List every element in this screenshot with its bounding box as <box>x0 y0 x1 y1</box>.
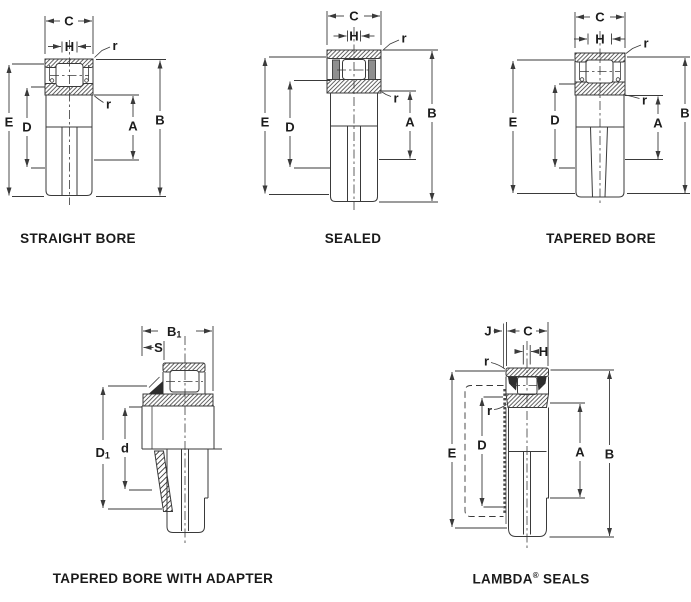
dim-b: B <box>155 113 164 128</box>
dim-e: E <box>448 446 457 461</box>
dim-h: H <box>349 29 358 44</box>
dim-b1-main: B <box>167 324 176 339</box>
dim-j: J <box>484 324 491 339</box>
dim-a: A <box>653 116 663 131</box>
dim-b1-sub: 1 <box>176 330 181 340</box>
dim-b1: B1 <box>167 324 181 340</box>
caption-straight-bore: STRAIGHT BORE <box>0 231 156 246</box>
dim-d1-main: D <box>96 445 105 460</box>
caption-lambda-post: SEALS <box>539 572 590 587</box>
caption-tapered-bore-with-adapter: TAPERED BORE WITH ADAPTER <box>38 571 288 586</box>
bearing-types-drawing-page: C H r r E D A B C <box>0 0 691 602</box>
dim-h: H <box>65 39 74 54</box>
dim-r-top: r <box>484 354 489 369</box>
bearing-diagrams-svg: C H r r E D A B C <box>0 0 691 602</box>
adapter-flange-hatch <box>143 394 213 406</box>
hub-body <box>46 95 92 196</box>
dim-d: D <box>285 120 294 135</box>
tapered-bore-with-adapter-figure: B1 S D1 d <box>96 324 223 546</box>
dim-r-top: r <box>401 31 406 46</box>
dim-d: D <box>22 120 31 135</box>
dim-d: D <box>477 438 486 453</box>
tapered-bore-figure: C H r r E D A B <box>509 10 690 206</box>
caption-sealed: SEALED <box>273 231 433 246</box>
adapter-sleeve <box>155 451 173 512</box>
hub-body <box>576 95 624 197</box>
caption-lambda-seals: LAMBDA® SEALS <box>431 571 631 587</box>
dim-d1: D1 <box>96 445 110 461</box>
seal-left <box>508 377 518 391</box>
dim-b: B <box>605 447 614 462</box>
shaft-cylinder <box>167 449 208 533</box>
dim-c: C <box>595 10 605 25</box>
dim-a: A <box>405 115 415 130</box>
dim-e: E <box>509 115 518 130</box>
dim-r-top: r <box>112 38 117 53</box>
dim-r-bottom: r <box>487 403 492 418</box>
dim-d: D <box>550 113 559 128</box>
seal-right <box>537 377 547 391</box>
lock-tab <box>149 381 164 394</box>
dim-e: E <box>261 115 270 130</box>
housing-block <box>142 406 222 449</box>
dim-c: C <box>64 14 74 29</box>
straight-bore-figure: C H r r E D A B <box>5 14 166 206</box>
dim-d-lower: d <box>121 441 129 456</box>
seal-right <box>369 60 376 80</box>
lambda-seals-figure: J C H r r E D A B <box>448 322 615 548</box>
dim-r-bottom: r <box>393 91 398 106</box>
hub-body <box>509 408 547 537</box>
dim-b: B <box>680 106 689 121</box>
dim-h: H <box>539 344 548 359</box>
dim-r-top: r <box>643 36 648 51</box>
caption-tapered-bore: TAPERED BORE <box>521 231 681 246</box>
dim-s: S <box>154 340 163 355</box>
dim-r-bottom: r <box>106 97 111 112</box>
sealed-figure: C H r r E D A B <box>261 9 438 211</box>
dim-a: A <box>128 119 138 134</box>
dim-e: E <box>5 115 14 130</box>
dim-d1-sub: 1 <box>105 451 110 461</box>
dim-r-bottom: r <box>642 93 647 108</box>
dim-h: H <box>595 32 604 47</box>
dim-a: A <box>575 445 585 460</box>
dim-c: C <box>523 324 533 339</box>
dim-c: C <box>349 9 359 24</box>
dim-b: B <box>427 106 436 121</box>
caption-lambda-pre: LAMBDA <box>472 572 532 587</box>
